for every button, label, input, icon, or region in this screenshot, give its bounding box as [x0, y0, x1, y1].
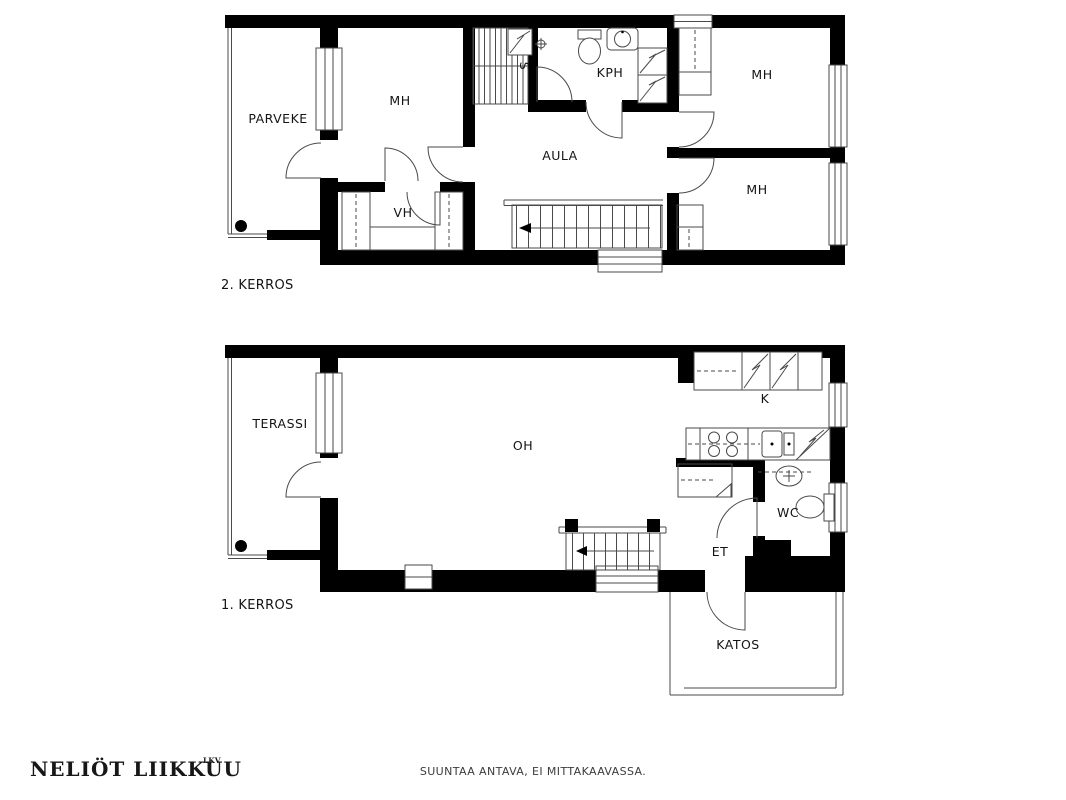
wc-sink-icon	[776, 466, 802, 486]
brand-suffix: LKV	[203, 756, 221, 765]
kitchen-fixtures	[686, 352, 830, 460]
balcony-drain-dot	[235, 220, 247, 232]
closet-icon	[638, 48, 667, 103]
floor-1-title: 1. KERROS	[221, 598, 294, 613]
disclaimer-text: SUUNTAA ANTAVA, EI MITTAKAAVASSA.	[420, 765, 646, 778]
room-label-oh: OH	[513, 438, 533, 453]
floorplan-drawing: PARVEKE MH S KPH MH MH AULA VH 2. KERROS	[0, 0, 1066, 800]
room-label-aula: AULA	[542, 148, 578, 163]
kitchen-cabinet-row	[694, 352, 822, 390]
room-label-mh-top-right: MH	[751, 67, 772, 82]
terrace-drain-dot	[235, 540, 247, 552]
kitchen-counter	[686, 428, 830, 460]
room-label-wc: WC	[777, 505, 799, 520]
room-label-sauna: S	[517, 62, 532, 70]
toilet-icon	[578, 30, 601, 64]
balcony-outline	[228, 28, 267, 238]
sink-icon	[607, 28, 638, 50]
window	[405, 565, 432, 589]
window	[316, 48, 342, 130]
room-label-parveke: PARVEKE	[248, 111, 307, 126]
stairs	[504, 200, 663, 248]
room-label-mh-left: MH	[389, 93, 410, 108]
window	[829, 383, 847, 427]
terrace-outline	[228, 358, 267, 559]
window	[674, 15, 712, 28]
window	[316, 373, 342, 453]
hallway-closet	[678, 464, 732, 497]
wc-toilet-icon	[796, 494, 834, 521]
room-label-et: ET	[712, 544, 729, 559]
room-label-katos: KATOS	[716, 637, 759, 652]
floor-1-plan: TERASSI OH K WC ET KATOS 1. KERROS	[221, 345, 847, 695]
window	[829, 65, 847, 147]
room-label-mh-bottom-right: MH	[746, 182, 767, 197]
room-label-terassi: TERASSI	[251, 416, 307, 431]
window	[829, 163, 847, 245]
floor-2-plan: PARVEKE MH S KPH MH MH AULA VH 2. KERROS	[221, 15, 847, 293]
room-label-kph: KPH	[597, 65, 624, 80]
window	[598, 250, 662, 272]
footer: NELIÖT LIIKKUU LKV SUUNTAA ANTAVA, EI MI…	[30, 756, 646, 781]
floor-2-title: 2. KERROS	[221, 278, 294, 293]
room-label-k: K	[761, 391, 770, 406]
stairs	[559, 519, 666, 570]
room-label-vh: VH	[394, 205, 413, 220]
floor-1-doors	[286, 462, 757, 630]
sauna-stove-icon	[508, 29, 532, 55]
floorplan-page: PARVEKE MH S KPH MH MH AULA VH 2. KERROS	[0, 0, 1066, 800]
kitchen-sink-icon	[762, 431, 794, 457]
